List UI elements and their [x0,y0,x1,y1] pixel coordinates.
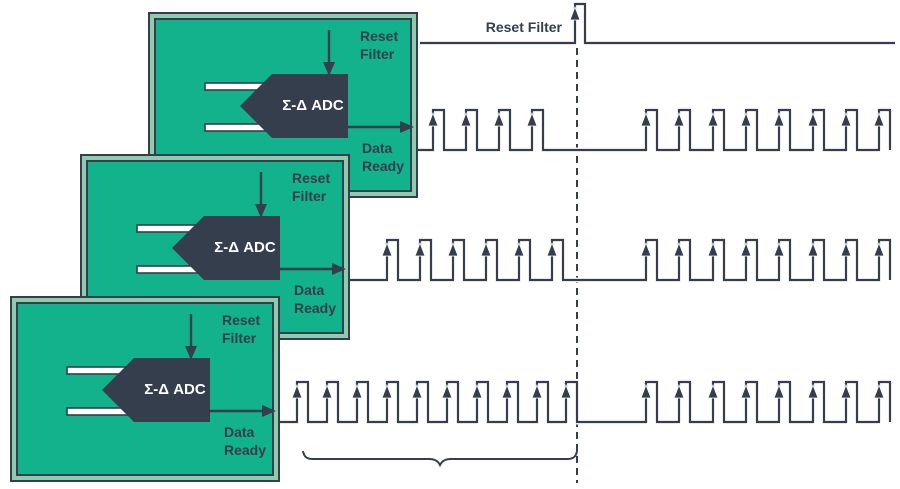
pulse-arrow-icon [774,243,784,256]
pulse-arrow-icon [382,385,392,398]
data-ready-waveform-2-casing [350,240,890,280]
pulse-arrow-icon [874,385,884,398]
pulse-arrow-icon [808,243,818,256]
pulse-arrow-icon [874,113,884,126]
pulse-arrow-icon [808,385,818,398]
pulse-arrow-icon [547,243,557,256]
data-ready-arrowhead-icon [400,121,414,133]
data-ready-waveform-3-casing [280,382,890,422]
reset-pulse-arrow-icon [570,7,580,20]
data-ready-waveform-1-casing [418,110,890,150]
data-ready-label-line2: Ready [362,157,404,175]
data-ready-waveform-2 [350,240,890,280]
pulse-arrow-icon [674,113,684,126]
adc-label: Σ-Δ ADC [204,216,286,280]
pulse-arrow-icon [874,243,884,256]
data-ready-label-line1: Data [224,423,266,441]
data-ready-arrowhead-icon [332,263,346,275]
pulse-arrow-icon [641,243,651,256]
pulse-arrow-icon [428,113,438,126]
pulse-arrow-icon [502,385,512,398]
reset-filter-label-line1: Reset [222,311,260,329]
pulse-arrow-icon [352,385,362,398]
pulse-arrow-icon [382,243,392,256]
pulse-arrow-icon [774,113,784,126]
pulse-arrow-icon [472,385,482,398]
pulse-arrow-icon [708,243,718,256]
data-ready-label: Data Ready [294,281,336,317]
settling-time-brace [303,451,577,465]
reset-filter-label-line2: Filter [292,187,330,205]
data-ready-label-line2: Ready [294,299,336,317]
pulse-arrow-icon [774,385,784,398]
pulse-arrow-icon [514,243,524,256]
pulse-arrow-icon [561,385,571,398]
data-ready-label: Data Ready [224,423,266,459]
data-ready-label: Data Ready [362,139,404,175]
pulse-arrow-icon [322,385,332,398]
pulse-arrow-icon [481,243,491,256]
data-ready-arrowhead-icon [262,405,276,417]
pulse-arrow-icon [448,243,458,256]
pulse-arrow-icon [741,243,751,256]
reset-filter-label-line1: Reset [292,169,330,187]
reset-filter-label: Reset Filter [222,311,260,347]
pulse-arrow-icon [532,385,542,398]
adc-card-3-panel: Reset Filter Σ-Δ ADC Data Ready [16,302,274,476]
pulse-arrow-icon [708,113,718,126]
pulse-arrow-icon [708,385,718,398]
pulse-arrow-icon [412,385,422,398]
adc-label: Σ-Δ ADC [134,358,216,422]
data-ready-label-line1: Data [362,139,404,157]
reset-filter-label-line1: Reset [360,27,398,45]
pulse-arrow-icon [808,113,818,126]
data-ready-label-line2: Ready [224,441,266,459]
reset-filter-label: Reset Filter [360,27,398,63]
adc-label: Σ-Δ ADC [272,74,354,138]
pulse-arrow-icon [442,385,452,398]
pulse-arrow-icon [741,385,751,398]
pulse-arrow-icon [641,385,651,398]
reset-filter-signal-label: Reset Filter [450,19,562,35]
data-ready-waveform-1 [418,110,890,150]
reset-filter-label-line2: Filter [360,45,398,63]
reset-filter-label: Reset Filter [292,169,330,205]
pulse-arrow-icon [741,113,751,126]
pulse-arrow-icon [527,113,537,126]
pulse-arrow-icon [641,113,651,126]
adc-sync-figure: Reset Filter Reset Filter Σ-Δ ADC Data R… [0,0,900,489]
reset-filter-label-line2: Filter [222,329,260,347]
pulse-arrow-icon [841,243,851,256]
adc-card-3: Reset Filter Σ-Δ ADC Data Ready [10,296,280,482]
data-ready-waveform-3 [280,382,890,422]
pulse-arrow-icon [494,113,504,126]
pulse-arrow-icon [674,243,684,256]
pulse-arrow-icon [461,113,471,126]
pulse-arrow-icon [415,243,425,256]
pulse-arrow-icon [292,385,302,398]
data-ready-label-line1: Data [294,281,336,299]
pulse-arrow-icon [674,385,684,398]
pulse-arrow-icon [841,385,851,398]
pulse-arrow-icon [841,113,851,126]
